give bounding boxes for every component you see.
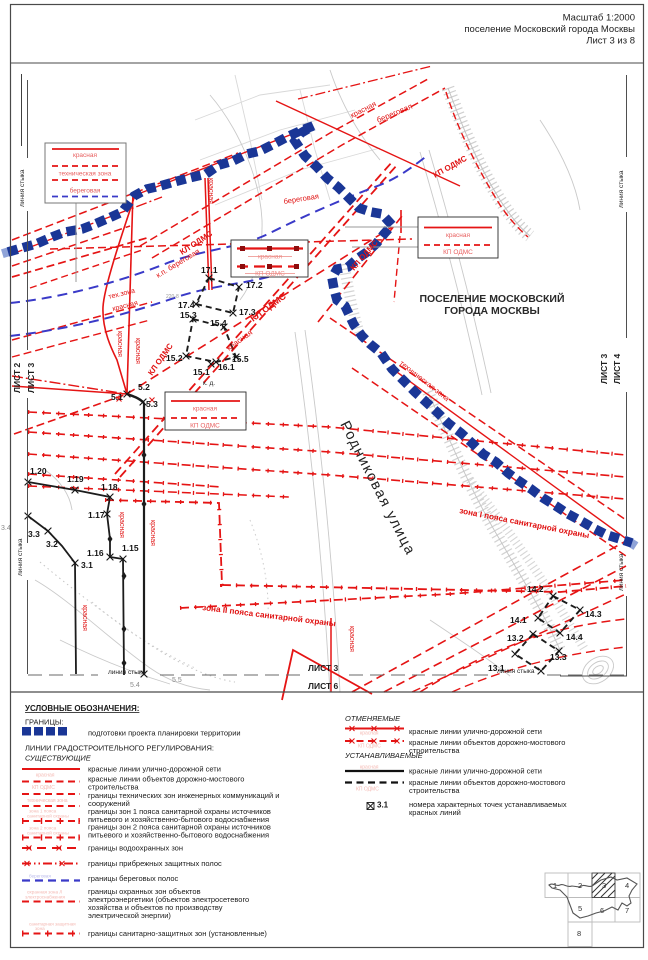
svg-text:красная: красная: [118, 512, 125, 538]
svg-text:КП ОДМС: КП ОДМС: [443, 249, 473, 256]
svg-text:15.3: 15.3: [180, 310, 197, 320]
svg-text:8: 8: [577, 929, 581, 938]
svg-text:3.4: 3.4: [1, 525, 11, 532]
svg-text:красные линии улично-дорожной: красные линии улично-дорожной сети: [88, 765, 221, 774]
svg-text:к. д.: к. д.: [203, 380, 215, 387]
svg-text:5.3: 5.3: [146, 399, 158, 409]
svg-text:электроснабжения: электроснабжения: [25, 895, 65, 900]
svg-text:3.1: 3.1: [377, 801, 389, 810]
svg-text:5.2: 5.2: [138, 382, 150, 392]
svg-text:КП ОДМС: КП ОДМС: [356, 787, 379, 793]
svg-text:1.15: 1.15: [122, 543, 139, 553]
svg-text:ЛИСТ 3: ЛИСТ 3: [599, 353, 609, 384]
svg-text:5.4: 5.4: [130, 682, 140, 689]
svg-text:15.1: 15.1: [193, 367, 210, 377]
svg-text:красная: красная: [36, 773, 55, 779]
svg-text:ЛИНИИ ГРАДОСТРОИТЕЛЬНОГО РЕГУЛ: ЛИНИИ ГРАДОСТРОИТЕЛЬНОГО РЕГУЛИРОВАНИЯ:: [25, 744, 214, 753]
svg-text:техническая зона: техническая зона: [59, 171, 112, 178]
svg-text:1.19: 1.19: [67, 474, 84, 484]
svg-text:линия стыка: линия стыка: [17, 538, 24, 576]
svg-text:техническая зона: техническая зона: [27, 798, 68, 804]
svg-text:1.17: 1.17: [88, 510, 105, 520]
svg-text:ЛИСТ 6: ЛИСТ 6: [308, 681, 339, 691]
svg-text:линия стыка: линия стыка: [19, 169, 26, 207]
svg-text:красная: красная: [348, 626, 355, 652]
svg-text:границы прибрежных защитных по: границы прибрежных защитных полос: [88, 859, 222, 868]
svg-text:красная: красная: [360, 765, 379, 771]
svg-text:КП ОДМС: КП ОДМС: [255, 271, 285, 278]
svg-text:красная: красная: [73, 152, 98, 159]
svg-text:границы береговых полос: границы береговых полос: [88, 874, 179, 883]
svg-text:14.3: 14.3: [585, 609, 602, 619]
svg-text:красная: красная: [116, 331, 123, 357]
svg-text:3.1: 3.1: [81, 560, 93, 570]
svg-text:1.18: 1.18: [101, 482, 118, 492]
svg-text:ЛИСТ 4: ЛИСТ 4: [612, 353, 622, 384]
svg-text:7: 7: [625, 906, 629, 915]
svg-text:ЛИСТ 3: ЛИСТ 3: [26, 362, 36, 393]
svg-text:подготовки проекта планировки: подготовки проекта планировки территории: [88, 729, 241, 738]
svg-text:линия стыка: линия стыка: [497, 668, 535, 675]
svg-text:5.5: 5.5: [172, 677, 182, 684]
svg-text:береговая: береговая: [70, 187, 101, 195]
svg-text:строительства: строительства: [409, 786, 460, 795]
svg-text:ПОСЕЛЕНИЕ МОСКОВСКИЙ: ПОСЕЛЕНИЕ МОСКОВСКИЙ: [419, 292, 564, 305]
svg-text:15.2: 15.2: [166, 353, 183, 363]
svg-text:границы санитарно-защитных зон: границы санитарно-защитных зон (установл…: [88, 929, 267, 938]
svg-text:санитарной охраны: санитарной охраны: [27, 813, 69, 819]
svg-text:3: 3: [602, 881, 606, 890]
svg-text:6: 6: [600, 906, 604, 915]
svg-text:границы водоохранных зон: границы водоохранных зон: [88, 844, 183, 853]
svg-text:13.2: 13.2: [507, 633, 524, 643]
svg-text:Лист 3 из 8: Лист 3 из 8: [586, 36, 635, 47]
svg-text:ГРАНИЦЫ:: ГРАНИЦЫ:: [25, 718, 64, 727]
svg-text:Масштаб 1:2000: Масштаб 1:2000: [563, 13, 635, 24]
svg-text:санитарной охраны: санитарной охраны: [27, 830, 69, 836]
svg-text:15.4: 15.4: [210, 318, 227, 328]
svg-text:красная: красная: [258, 254, 283, 261]
svg-text:зона: зона: [35, 926, 45, 931]
svg-text:красная: красная: [193, 406, 218, 413]
svg-text:5.1: 5.1: [111, 392, 123, 402]
svg-text:ОТМЕНЯЕМЫЕ: ОТМЕНЯЕМЫЕ: [345, 714, 401, 723]
svg-text:линия стыка: линия стыка: [618, 553, 625, 591]
svg-text:красные линии улично-дорожной: красные линии улично-дорожной сети: [409, 727, 542, 736]
svg-text:береговая: береговая: [29, 874, 51, 879]
svg-text:КП ОДМС: КП ОДМС: [32, 785, 55, 791]
svg-text:КП ОДМС: КП ОДМС: [358, 744, 381, 750]
svg-text:красная: красная: [207, 178, 214, 204]
svg-text:УСТАНАВЛИВАЕМЫЕ: УСТАНАВЛИВАЕМЫЕ: [344, 751, 424, 760]
svg-text:красная: красная: [446, 232, 471, 239]
svg-text:17.2: 17.2: [246, 280, 263, 290]
svg-text:14.4: 14.4: [566, 632, 583, 642]
svg-text:3.3: 3.3: [28, 529, 40, 539]
svg-text:ЛИСТ 2: ЛИСТ 2: [12, 362, 22, 393]
svg-text:14.2: 14.2: [527, 584, 544, 594]
svg-text:линия стыка: линия стыка: [618, 170, 625, 208]
svg-text:поселение Московский города Мо: поселение Московский города Москвы: [464, 24, 635, 35]
svg-text:14.1: 14.1: [510, 615, 527, 625]
svg-text:УСЛОВНЫЕ ОБОЗНАЧЕНИЯ:: УСЛОВНЫЕ ОБОЗНАЧЕНИЯ:: [25, 704, 139, 713]
svg-text:красная: красная: [149, 520, 156, 546]
svg-text:17.3: 17.3: [239, 307, 256, 317]
svg-text:красные линии улично-дорожной: красные линии улично-дорожной сети: [409, 767, 542, 776]
svg-text:питьевого и хозяйственно-бытов: питьевого и хозяйственно-бытового водосн…: [88, 831, 269, 840]
svg-text:5: 5: [578, 904, 582, 913]
svg-text:17.1: 17.1: [201, 265, 218, 275]
svg-text:ГОРОДА МОСКВЫ: ГОРОДА МОСКВЫ: [444, 305, 540, 317]
svg-text:красная: красная: [360, 731, 379, 737]
svg-text:линия стыка: линия стыка: [108, 669, 146, 676]
svg-text:красных линий: красных линий: [409, 808, 461, 817]
svg-text:16.1: 16.1: [218, 362, 235, 372]
svg-text:красная: красная: [81, 605, 88, 631]
svg-text:электрической энергии): электрической энергии): [88, 911, 171, 920]
svg-text:17.4: 17.4: [178, 300, 195, 310]
svg-text:1.20: 1.20: [30, 466, 47, 476]
svg-text:3.2: 3.2: [46, 539, 58, 549]
svg-text:1.16: 1.16: [87, 548, 104, 558]
svg-text:КП ОДМС: КП ОДМС: [190, 423, 220, 430]
svg-text:13.3: 13.3: [550, 652, 567, 662]
svg-text:ЛИСТ 3: ЛИСТ 3: [308, 663, 339, 673]
svg-text:СУЩЕСТВУЮЩИЕ: СУЩЕСТВУЮЩИЕ: [25, 754, 92, 763]
svg-text:220-8: 220-8: [166, 294, 179, 300]
svg-text:4: 4: [625, 881, 629, 890]
svg-text:красная: красная: [134, 338, 141, 364]
